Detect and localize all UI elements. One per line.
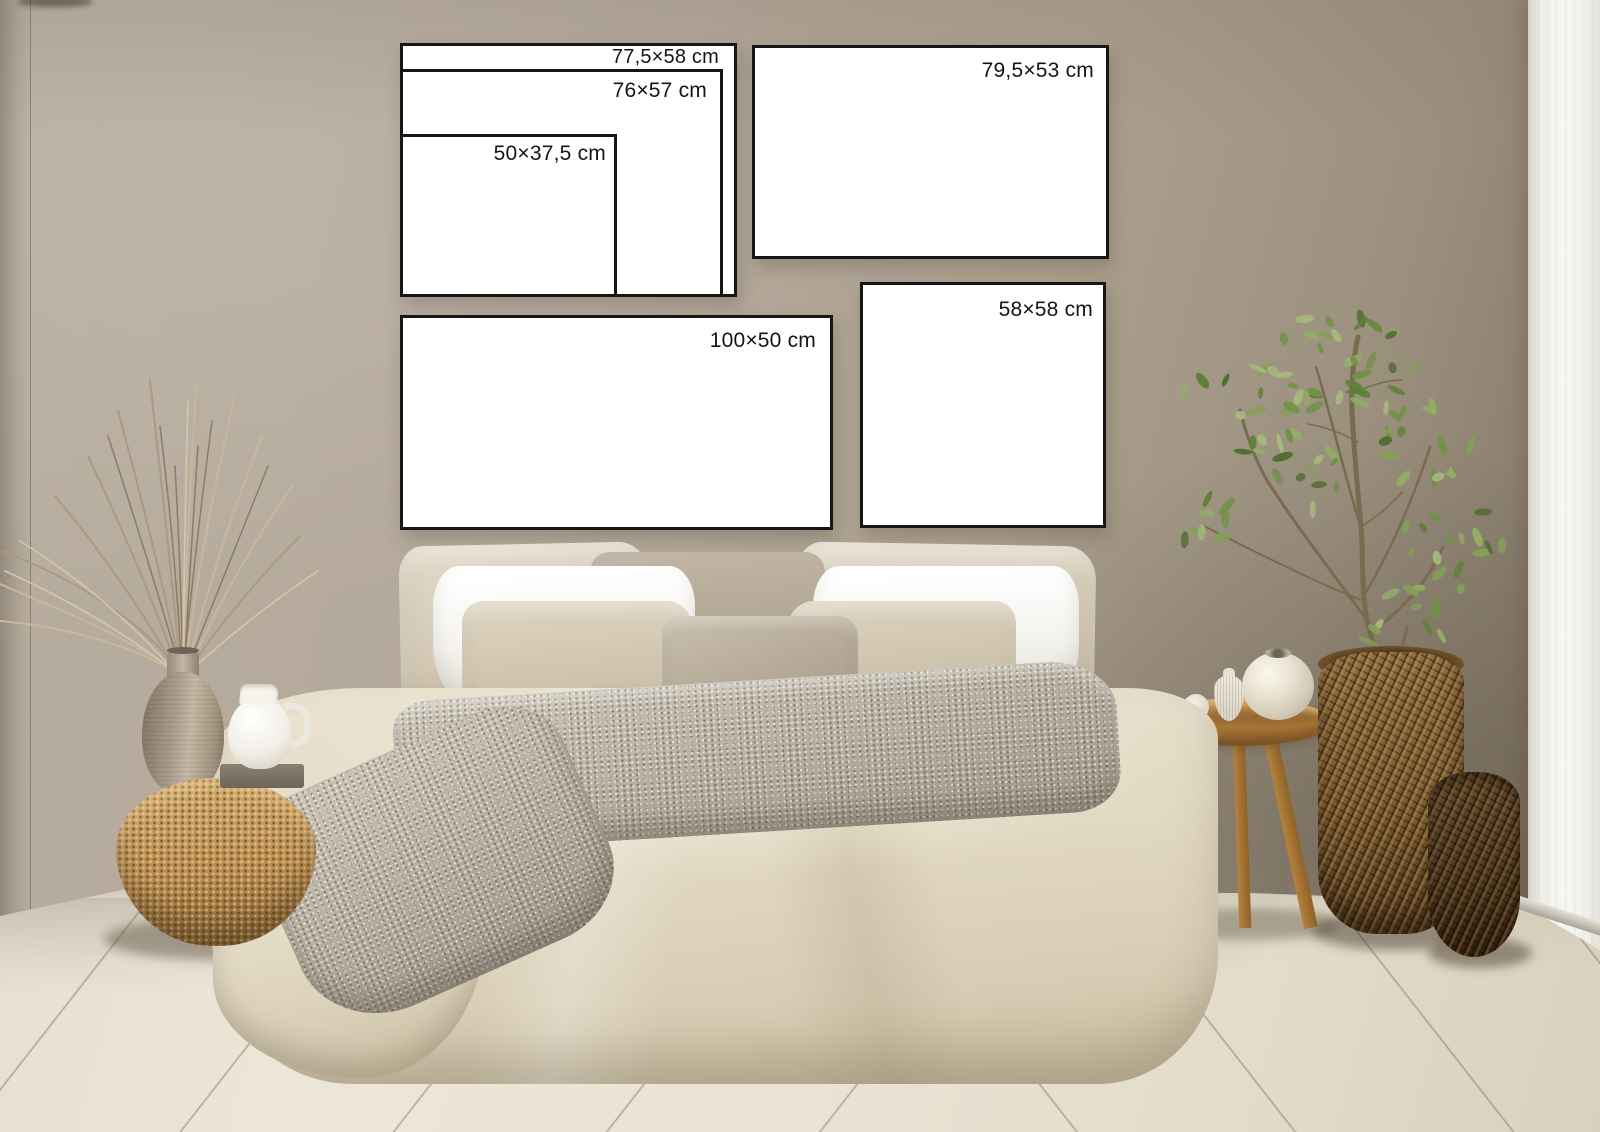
- dried-grass: [0, 326, 345, 678]
- ceramic-vase: [142, 672, 224, 794]
- bedroom-mockup-scene: 77,5×58 cm 76×57 cm 50×37,5 cm 79,5×53 c…: [0, 0, 1600, 1132]
- white-jug: [228, 697, 292, 769]
- white-jug-neck: [239, 684, 279, 704]
